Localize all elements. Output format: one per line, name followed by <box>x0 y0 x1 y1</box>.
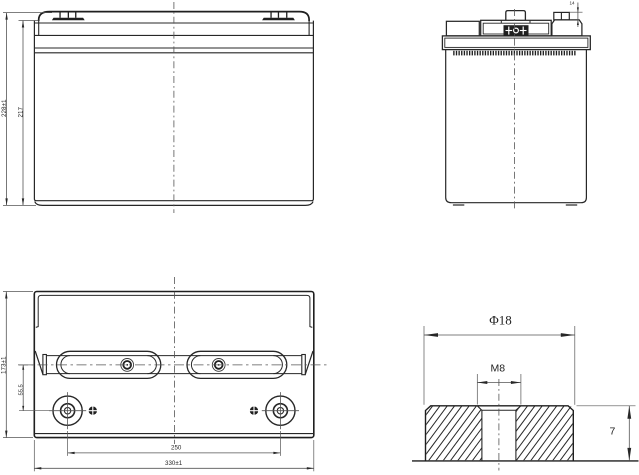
svg-text:173±1: 173±1 <box>1 356 8 374</box>
svg-text:14: 14 <box>570 1 576 6</box>
svg-text:55.5: 55.5 <box>19 384 25 395</box>
svg-text:Φ18: Φ18 <box>489 313 512 328</box>
svg-text:7: 7 <box>610 426 616 438</box>
svg-text:228±1: 228±1 <box>1 99 8 117</box>
svg-text:217: 217 <box>17 106 24 117</box>
svg-text:330±1: 330±1 <box>165 460 183 467</box>
svg-text:M8: M8 <box>491 362 506 374</box>
svg-text:250: 250 <box>171 444 182 451</box>
